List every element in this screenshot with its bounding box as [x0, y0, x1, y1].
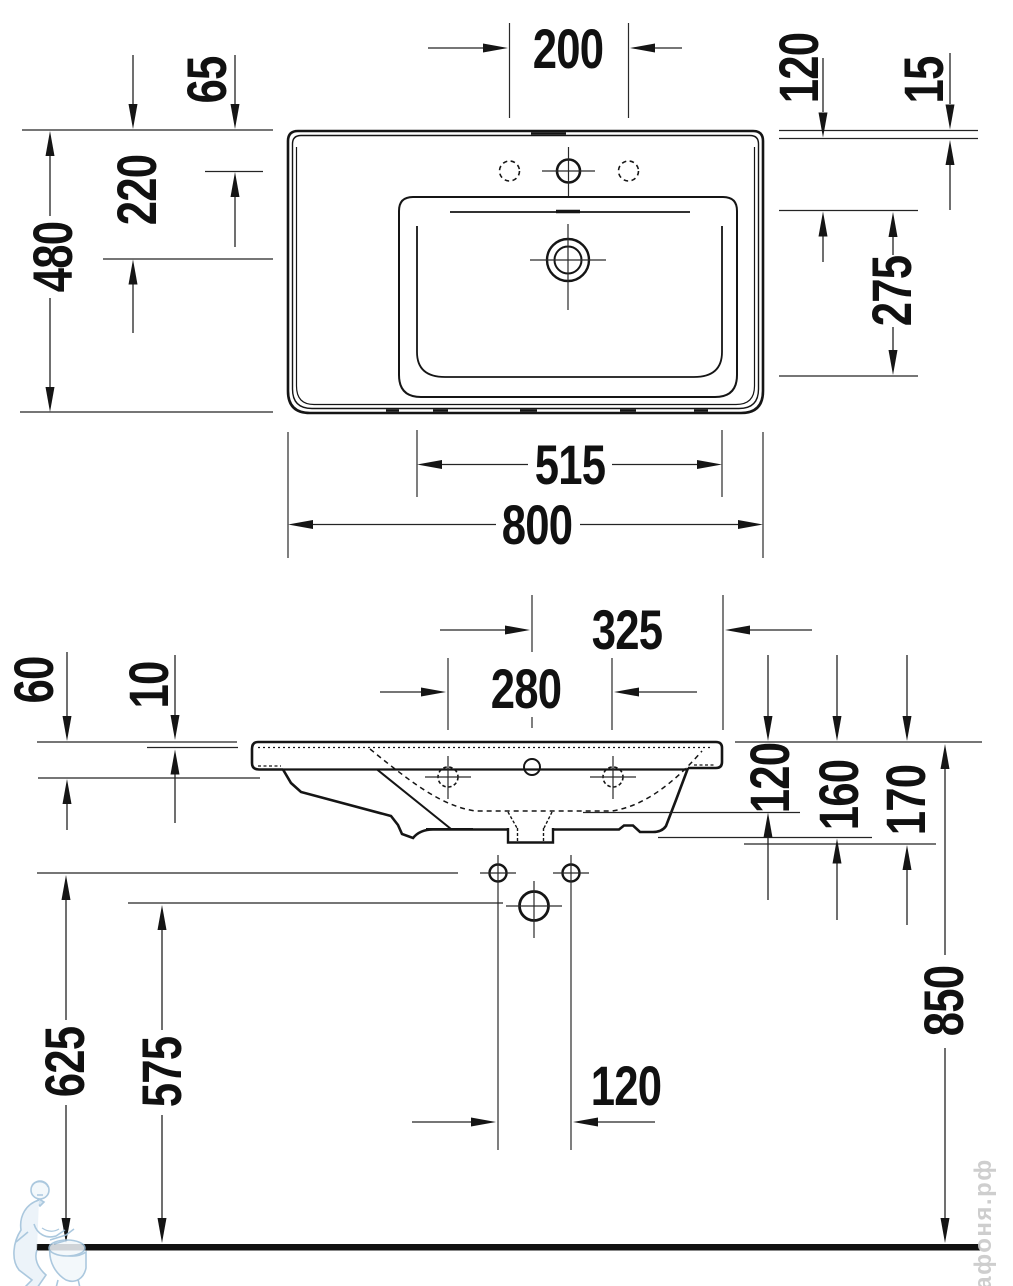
- dim-label-220: 220: [106, 155, 168, 226]
- technical-drawing-page: 200 65 220 480 120 15 275 515: [0, 0, 1013, 1286]
- dim-label-625: 625: [34, 1027, 96, 1098]
- basin-rim-inner-line-2: [297, 147, 755, 405]
- dim-label-275: 275: [861, 256, 923, 327]
- wall-fixing-crosshairs: [425, 756, 636, 799]
- overflow-hole: [524, 759, 540, 775]
- leader-lines-right: [779, 131, 978, 377]
- tap-hole-crosshair: [542, 147, 595, 196]
- dim-label-575: 575: [131, 1037, 193, 1108]
- site-watermark-text: афоня.рф: [970, 1158, 997, 1286]
- dim-label-325: 325: [592, 599, 663, 661]
- tap-hole-right-dashed: [619, 161, 639, 181]
- dim-label-65: 65: [176, 56, 238, 103]
- dim-label-170: 170: [875, 765, 937, 836]
- dim-label-480: 480: [22, 222, 84, 293]
- dim-label-15: 15: [893, 56, 955, 103]
- drain-trap-hidden: [518, 828, 544, 842]
- plan-view-dimensions: 200 65 220 480 120 15 275 515: [20, 18, 978, 558]
- dim-label-120-rear: 120: [768, 33, 830, 104]
- dim-label-60: 60: [3, 656, 65, 703]
- dim-label-200: 200: [533, 18, 604, 80]
- hidden-edge-ticks: [386, 134, 708, 411]
- basin-outline-plan: [288, 131, 763, 413]
- rim-slab-outline: [252, 742, 722, 770]
- drain-funnel-hidden: [508, 812, 552, 828]
- bowl-hidden-contour: [370, 749, 702, 811]
- bowl-floor-outline: [417, 226, 722, 377]
- dim-label-10: 10: [118, 661, 180, 708]
- dim-label-850: 850: [913, 966, 975, 1037]
- dim-label-280: 280: [491, 658, 562, 720]
- drain-trap-box: [508, 828, 553, 843]
- front-view-dimensions: 60 10 325 280 120 160 170 850: [3, 595, 982, 1243]
- dim-label-800: 800: [502, 494, 573, 556]
- dim-label-515: 515: [535, 434, 606, 496]
- dim-label-120-depth: 120: [739, 743, 801, 814]
- drain-pipe-crosshair: [506, 881, 562, 938]
- washbasin-dimension-drawing: 200 65 220 480 120 15 275 515: [0, 0, 1013, 1286]
- dim-label-120-holes: 120: [591, 1055, 662, 1117]
- drain-crosshair: [530, 224, 606, 310]
- tap-hole-left-dashed: [500, 161, 520, 181]
- rim-hidden-dashes: [258, 765, 715, 766]
- plumber-logo-watermark: [14, 1181, 86, 1286]
- dim-label-160: 160: [808, 760, 870, 831]
- basin-rim-inner-line: [293, 136, 759, 409]
- floor-line: [36, 1244, 980, 1251]
- apron-left: [283, 770, 508, 839]
- plan-view: [288, 131, 763, 413]
